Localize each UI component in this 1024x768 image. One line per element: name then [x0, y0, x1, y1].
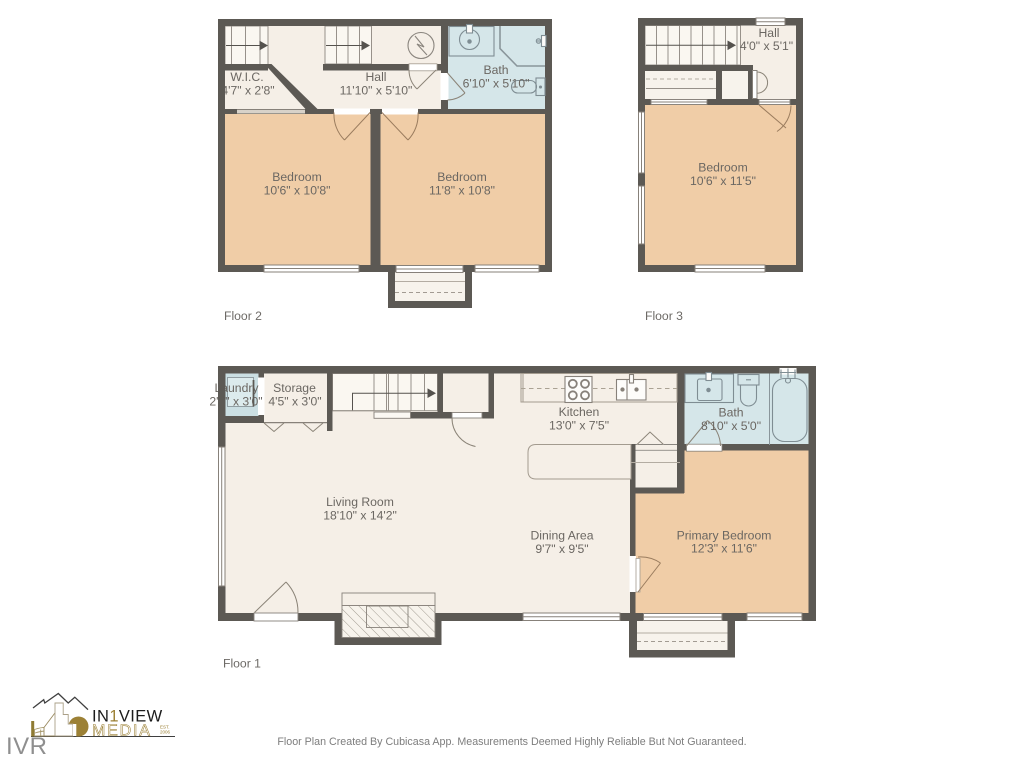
- svg-text:Bath: Bath: [718, 406, 743, 420]
- svg-text:Floor Plan Created By Cubicasa: Floor Plan Created By Cubicasa App. Meas…: [277, 736, 746, 748]
- svg-text:Floor 2: Floor 2: [224, 309, 262, 323]
- svg-text:4'0" x 5'1": 4'0" x 5'1": [740, 39, 793, 53]
- svg-text:10'6" x 11'5": 10'6" x 11'5": [690, 174, 756, 188]
- svg-text:Floor 3: Floor 3: [645, 309, 683, 323]
- svg-text:Primary Bedroom: Primary Bedroom: [677, 529, 772, 543]
- svg-text:6'10" x 5'10": 6'10" x 5'10": [463, 77, 530, 91]
- svg-text:2'7" x 3'0": 2'7" x 3'0": [209, 395, 262, 409]
- svg-text:W.I.C.: W.I.C.: [230, 70, 263, 84]
- svg-text:11'10" x 5'10": 11'10" x 5'10": [340, 84, 413, 98]
- svg-text:MEDIA: MEDIA: [92, 723, 152, 740]
- svg-text:Dining Area: Dining Area: [530, 529, 593, 543]
- svg-text:Bedroom: Bedroom: [698, 161, 747, 175]
- svg-text:4'5" x 3'0": 4'5" x 3'0": [268, 395, 321, 409]
- svg-text:2006: 2006: [160, 730, 171, 735]
- svg-text:13'0" x 7'5": 13'0" x 7'5": [549, 419, 609, 433]
- svg-text:Hall: Hall: [759, 26, 780, 40]
- svg-text:11'8" x 10'8": 11'8" x 10'8": [429, 184, 495, 198]
- svg-text:Bedroom: Bedroom: [437, 170, 486, 184]
- svg-text:8'10" x 5'0": 8'10" x 5'0": [701, 419, 761, 433]
- svg-text:4'7" x 2'8": 4'7" x 2'8": [221, 84, 274, 98]
- svg-text:9'7" x 9'5": 9'7" x 9'5": [535, 542, 588, 556]
- svg-text:Kitchen: Kitchen: [559, 405, 600, 419]
- svg-text:Bath: Bath: [483, 63, 508, 77]
- svg-text:Bedroom: Bedroom: [272, 170, 321, 184]
- svg-text:Floor 1: Floor 1: [223, 657, 261, 671]
- svg-text:Storage: Storage: [273, 381, 316, 395]
- svg-text:18'10" x 14'2": 18'10" x 14'2": [323, 509, 397, 523]
- svg-text:12'3" x 11'6": 12'3" x 11'6": [691, 542, 757, 556]
- svg-text:IVR: IVR: [6, 733, 48, 760]
- svg-text:Living Room: Living Room: [326, 495, 394, 509]
- svg-text:Hall: Hall: [366, 70, 387, 84]
- svg-text:10'6" x 10'8": 10'6" x 10'8": [264, 184, 331, 198]
